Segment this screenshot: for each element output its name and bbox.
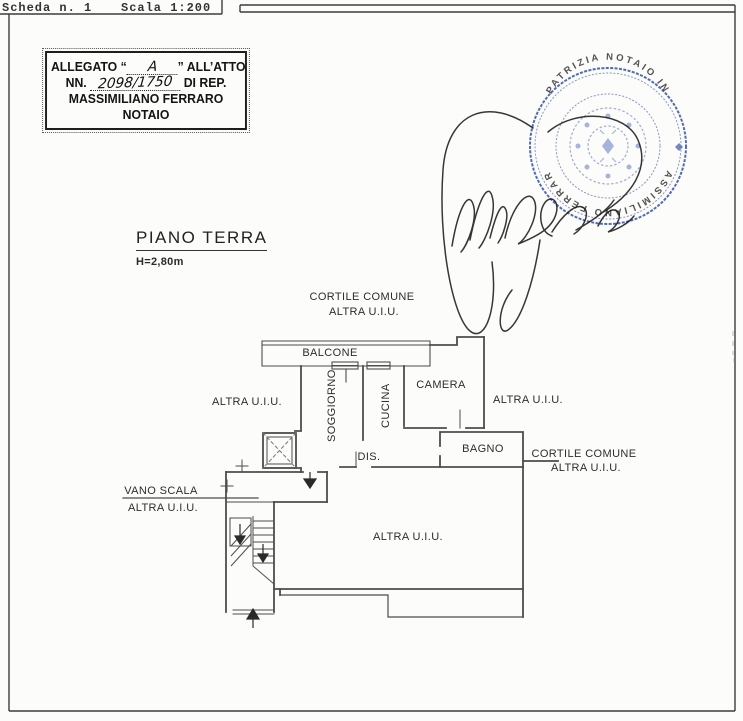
- direction-arrows: [235, 472, 316, 628]
- floor-plan: [123, 337, 558, 617]
- label-cortile-top-sub: ALTRA U.I.U.: [329, 306, 399, 318]
- door-entry-arrow: [304, 472, 316, 488]
- label-altra-right: ALTRA U.I.U.: [493, 394, 563, 406]
- label-dis: DIS.: [358, 451, 381, 463]
- label-altra-bottom: ALTRA U.I.U.: [373, 531, 443, 543]
- label-balcone: BALCONE: [302, 347, 357, 359]
- staircase: [230, 516, 274, 584]
- label-cortile-top: CORTILE COMUNE: [309, 291, 414, 303]
- stair-arrow-upper: [235, 524, 245, 544]
- seal-emblem: [576, 114, 641, 179]
- seal-arc-top-text: PATRIZIA NOTAIO IN: [544, 52, 672, 96]
- label-cortile-right: CORTILE COMUNE: [531, 448, 636, 460]
- label-cucina: CUCINA: [380, 383, 392, 428]
- document-page: Scheda n. 1 Scala 1:200 ALLEGATO “A” ALL…: [0, 0, 743, 721]
- margin-marks: [733, 331, 734, 362]
- main-entry-arrow: [247, 609, 259, 628]
- elevator-shaft: [263, 433, 296, 468]
- page-border: [0, 0, 735, 711]
- label-vano-scala-sub: ALTRA U.I.U.: [128, 502, 198, 514]
- floor-plan-canvas: CORTILE COMUNE ALTRA U.I.U. BALCONE SOGG…: [0, 0, 743, 721]
- label-soggiorno: SOGGIORNO: [326, 369, 338, 442]
- label-bagno: BAGNO: [462, 443, 504, 455]
- label-camera: CAMERA: [416, 379, 466, 391]
- notary-seal: PATRIZIA NOTAIO IN MASSIMILIANO FERRARO: [0, 0, 686, 224]
- stair-arrow-lower: [258, 544, 268, 562]
- seal-separator-star: [675, 143, 683, 151]
- label-vano-scala: VANO SCALA: [124, 485, 198, 497]
- label-altra-left: ALTRA U.I.U.: [212, 396, 282, 408]
- label-cortile-right-sub: ALTRA U.I.U.: [551, 462, 621, 474]
- plan-labels: CORTILE COMUNE ALTRA U.I.U. BALCONE SOGG…: [124, 291, 636, 543]
- section-ticks: [221, 460, 248, 492]
- svg-text:PATRIZIA NOTAIO IN: PATRIZIA NOTAIO IN: [544, 52, 672, 96]
